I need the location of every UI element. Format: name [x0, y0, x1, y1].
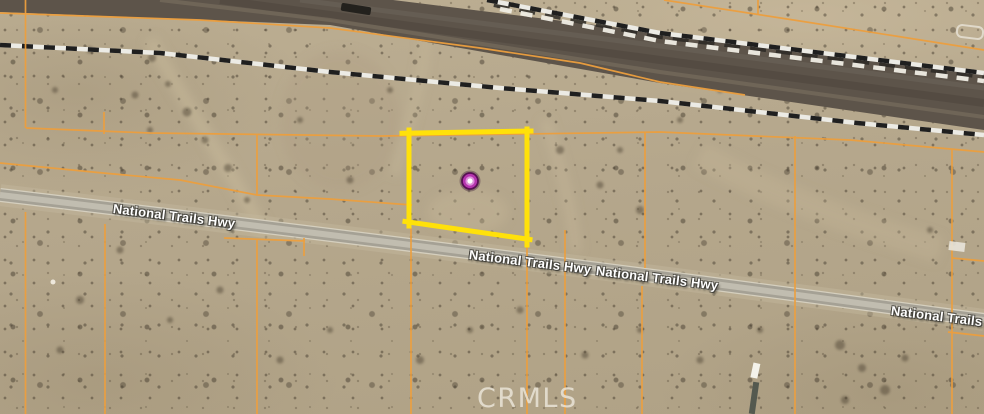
property-marker-icon[interactable] [460, 171, 481, 192]
map-canvas[interactable]: National Trails Hwy National Trails Hwy … [0, 0, 984, 414]
crmls-watermark: CRMLS [477, 383, 578, 414]
white-speck [51, 280, 56, 285]
trailer-shadow [749, 382, 759, 414]
tank-outline [956, 24, 983, 39]
small-building [948, 241, 965, 252]
white-truck [750, 363, 760, 379]
